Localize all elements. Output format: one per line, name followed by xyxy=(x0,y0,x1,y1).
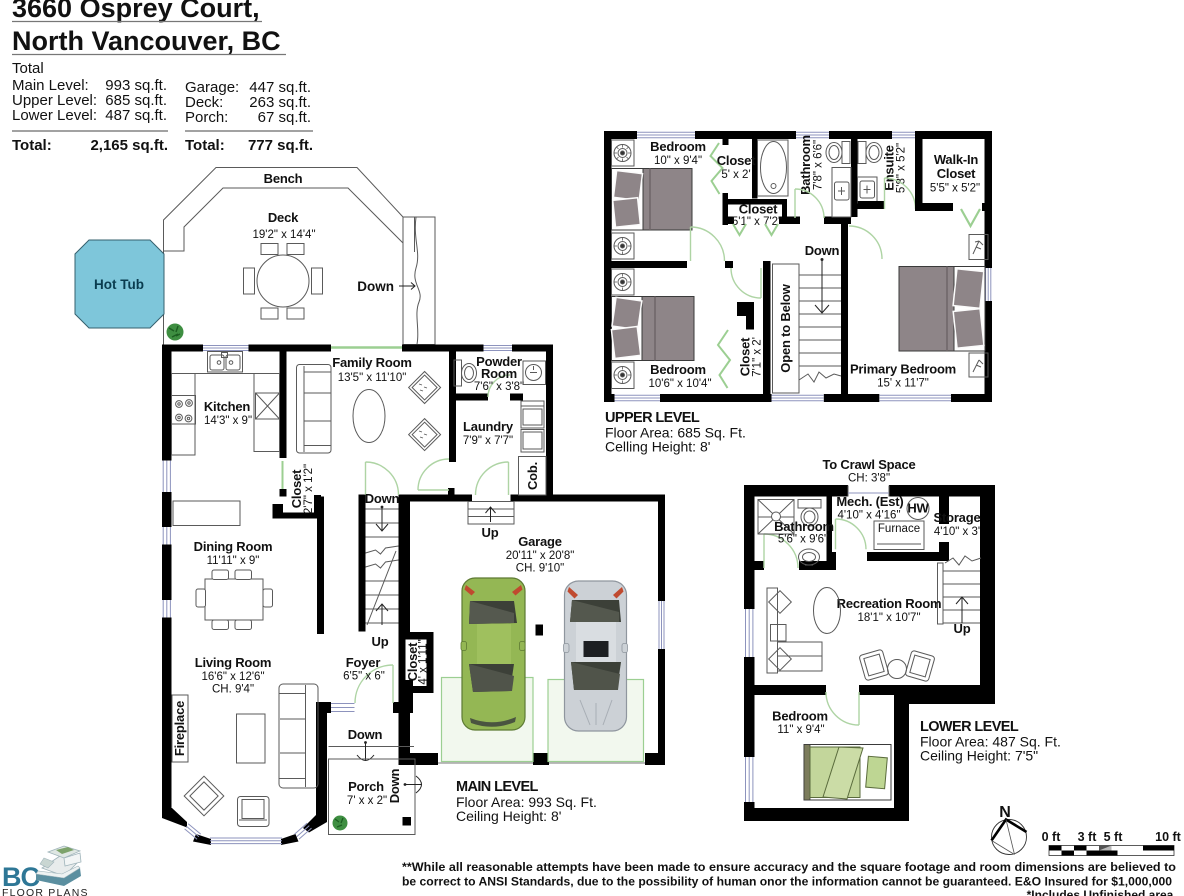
svg-text:Up: Up xyxy=(954,621,971,636)
svg-text:Laundry: Laundry xyxy=(463,419,514,434)
svg-text:*Includes Unfinished area: *Includes Unfinished area xyxy=(1027,888,1174,896)
svg-text:7'9" x 7'7": 7'9" x 7'7" xyxy=(463,435,513,447)
svg-text:**While all reasonable attempt: **While all reasonable attempts have bee… xyxy=(402,860,1176,874)
svg-text:Furnace: Furnace xyxy=(878,523,920,535)
svg-text:10 ft: 10 ft xyxy=(1155,830,1182,844)
svg-text:7'6" x 3'8": 7'6" x 3'8" xyxy=(474,381,524,393)
svg-text:3 ft: 3 ft xyxy=(1078,830,1098,844)
svg-text:6'5" x 6": 6'5" x 6" xyxy=(343,671,385,683)
svg-text:Down: Down xyxy=(348,727,383,742)
svg-text:Closet: Closet xyxy=(739,202,778,217)
svg-text:Closet: Closet xyxy=(738,337,753,376)
svg-text:2'7" x 1'2": 2'7" x 1'2" xyxy=(303,464,315,514)
svg-text:Ensuite: Ensuite xyxy=(882,145,897,191)
svg-text:487 sq.ft.: 487 sq.ft. xyxy=(105,107,167,124)
svg-text:7'8" x 6'6": 7'8" x 6'6" xyxy=(813,140,825,190)
svg-text:Bedroom: Bedroom xyxy=(650,139,706,154)
svg-text:CH. 9'10": CH. 9'10" xyxy=(516,563,564,575)
svg-text:Closet: Closet xyxy=(937,166,976,181)
svg-text:Closet: Closet xyxy=(717,153,756,168)
svg-text:67 sq.ft.: 67 sq.ft. xyxy=(258,109,311,126)
svg-text:Closet: Closet xyxy=(289,469,304,508)
svg-text:Down: Down xyxy=(387,768,402,803)
svg-text:N: N xyxy=(999,804,1011,821)
svg-text:CH. 9'4": CH. 9'4" xyxy=(212,684,254,696)
svg-text:4'10" x 4'16": 4'10" x 4'16" xyxy=(837,510,900,522)
svg-text:Open to Below: Open to Below xyxy=(778,283,793,372)
svg-text:14'3" x 9": 14'3" x 9" xyxy=(204,415,252,427)
svg-text:Walk-In: Walk-In xyxy=(934,152,979,167)
svg-text:Bedroom: Bedroom xyxy=(650,362,706,377)
svg-text:Bathroom: Bathroom xyxy=(774,519,834,534)
svg-text:Storage: Storage xyxy=(933,510,980,525)
svg-text:20'11" x 20'8": 20'11" x 20'8" xyxy=(506,550,575,562)
svg-text:Deck: Deck xyxy=(268,210,299,225)
svg-text:Down: Down xyxy=(805,243,840,258)
svg-text:CH: 3'8": CH: 3'8" xyxy=(848,473,890,485)
svg-text:777 sq.ft.: 777 sq.ft. xyxy=(248,137,313,154)
svg-text:Dining Room: Dining Room xyxy=(194,539,273,554)
svg-text:Total:: Total: xyxy=(12,137,52,154)
svg-text:Cob.: Cob. xyxy=(525,462,540,490)
svg-text:18'1" x 10'7": 18'1" x 10'7" xyxy=(857,612,920,624)
svg-text:Fireplace: Fireplace xyxy=(172,701,187,756)
svg-text:Kitchen: Kitchen xyxy=(204,399,251,414)
svg-text:Garage: Garage xyxy=(518,534,562,549)
svg-text:Porch: Porch xyxy=(348,779,384,794)
svg-text:0 ft: 0 ft xyxy=(1042,830,1062,844)
svg-text:2,165 sq.ft.: 2,165 sq.ft. xyxy=(90,137,168,154)
svg-text:11'11" x 9": 11'11" x 9" xyxy=(207,555,260,567)
svg-text:10'6" x 10'4": 10'6" x 10'4" xyxy=(648,378,711,390)
svg-text:7' x x 2": 7' x x 2" xyxy=(347,795,387,807)
svg-text:13'5" x 11'10": 13'5" x 11'10" xyxy=(338,372,407,384)
svg-text:4' x 1'11": 4' x 1'11" xyxy=(418,639,430,684)
svg-text:15' x 11'7": 15' x 11'7" xyxy=(877,378,929,390)
svg-text:Porch:: Porch: xyxy=(185,109,228,126)
svg-text:Ceiling Height: 8': Ceiling Height: 8' xyxy=(456,808,561,824)
svg-text:4'10" x 3': 4'10" x 3' xyxy=(934,526,980,538)
svg-text:5'6" x 9'6": 5'6" x 9'6" xyxy=(778,534,828,546)
svg-text:5 ft: 5 ft xyxy=(1104,830,1124,844)
svg-text:5' x 2': 5' x 2' xyxy=(721,169,750,181)
svg-text:To Crawl Space: To Crawl Space xyxy=(822,457,915,472)
svg-text:Foyer: Foyer xyxy=(346,655,381,670)
svg-text:5'1" x 7'2": 5'1" x 7'2" xyxy=(732,216,782,228)
svg-text:Bench: Bench xyxy=(264,171,303,186)
svg-text:Family Room: Family Room xyxy=(332,355,411,370)
svg-text:Bathroom: Bathroom xyxy=(798,135,813,195)
svg-text:North Vancouver, BC: North Vancouver, BC xyxy=(12,26,281,56)
svg-text:MAIN LEVEL: MAIN LEVEL xyxy=(456,779,539,795)
svg-text:16'6" x 12'6": 16'6" x 12'6" xyxy=(201,671,264,683)
svg-text:5'5" x 5'2": 5'5" x 5'2" xyxy=(930,183,980,195)
svg-text:Total: Total xyxy=(12,60,44,77)
svg-text:Living Room: Living Room xyxy=(195,655,272,670)
svg-text:19'2" x 14'4": 19'2" x 14'4" xyxy=(252,229,315,241)
svg-text:HW: HW xyxy=(907,501,929,516)
svg-text:Lower Level:: Lower Level: xyxy=(12,107,97,124)
svg-text:Total:: Total: xyxy=(185,137,225,154)
svg-text:Hot Tub: Hot Tub xyxy=(94,277,144,292)
svg-text:FLOOR PLANS: FLOOR PLANS xyxy=(2,887,89,896)
svg-text:Down: Down xyxy=(357,279,394,294)
svg-text:Mech. (Est): Mech. (Est) xyxy=(836,494,903,509)
svg-text:Up: Up xyxy=(482,525,499,540)
svg-text:3660 Osprey Court,: 3660 Osprey Court, xyxy=(12,0,260,23)
svg-text:7'1" x 2': 7'1" x 2' xyxy=(752,337,764,377)
svg-text:Recreation Room: Recreation Room xyxy=(837,596,942,611)
svg-text:Up: Up xyxy=(372,634,389,649)
svg-text:10" x 9'4": 10" x 9'4" xyxy=(654,155,702,167)
svg-text:Celling Height: 8': Celling Height: 8' xyxy=(605,439,710,455)
svg-text:Room: Room xyxy=(481,366,517,381)
svg-text:11" x 9'4": 11" x 9'4" xyxy=(777,724,824,736)
svg-text:Ceiling Height: 7'5": Ceiling Height: 7'5" xyxy=(920,748,1038,764)
svg-text:be correct to ANSI Standards,: be correct to ANSI Standards, due to the… xyxy=(402,875,1172,889)
svg-text:Primary Bedroom: Primary Bedroom xyxy=(850,362,956,377)
svg-text:Bedroom: Bedroom xyxy=(772,709,828,724)
svg-text:Down: Down xyxy=(365,491,400,506)
